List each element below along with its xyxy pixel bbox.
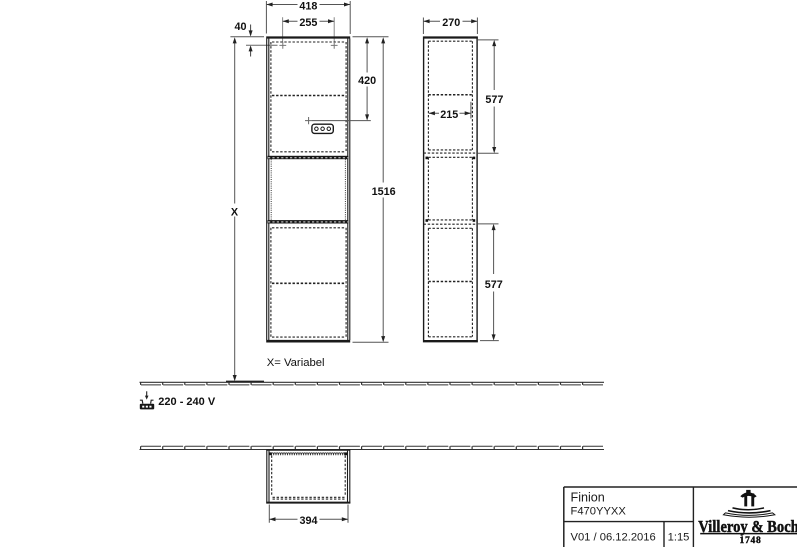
svg-text:V01 / 06.12.2016: V01 / 06.12.2016 [571, 532, 656, 544]
svg-text:270: 270 [442, 17, 460, 29]
svg-text:40: 40 [234, 21, 246, 33]
svg-text:577: 577 [485, 279, 503, 291]
svg-text:420: 420 [358, 75, 376, 87]
svg-text:Finion: Finion [571, 491, 605, 505]
svg-text:X: X [231, 206, 239, 218]
svg-text:418: 418 [299, 0, 317, 12]
svg-text:X= Variabel: X= Variabel [267, 357, 325, 369]
svg-text:F470YYXX: F470YYXX [571, 506, 627, 518]
svg-text:1:15: 1:15 [668, 532, 690, 544]
svg-text:220 - 240 V: 220 - 240 V [158, 396, 216, 408]
svg-text:215: 215 [440, 109, 458, 121]
svg-text:1516: 1516 [372, 186, 396, 198]
svg-text:1748: 1748 [740, 535, 762, 546]
svg-text:394: 394 [299, 515, 317, 527]
svg-text:255: 255 [299, 17, 317, 29]
svg-text:577: 577 [485, 94, 503, 106]
